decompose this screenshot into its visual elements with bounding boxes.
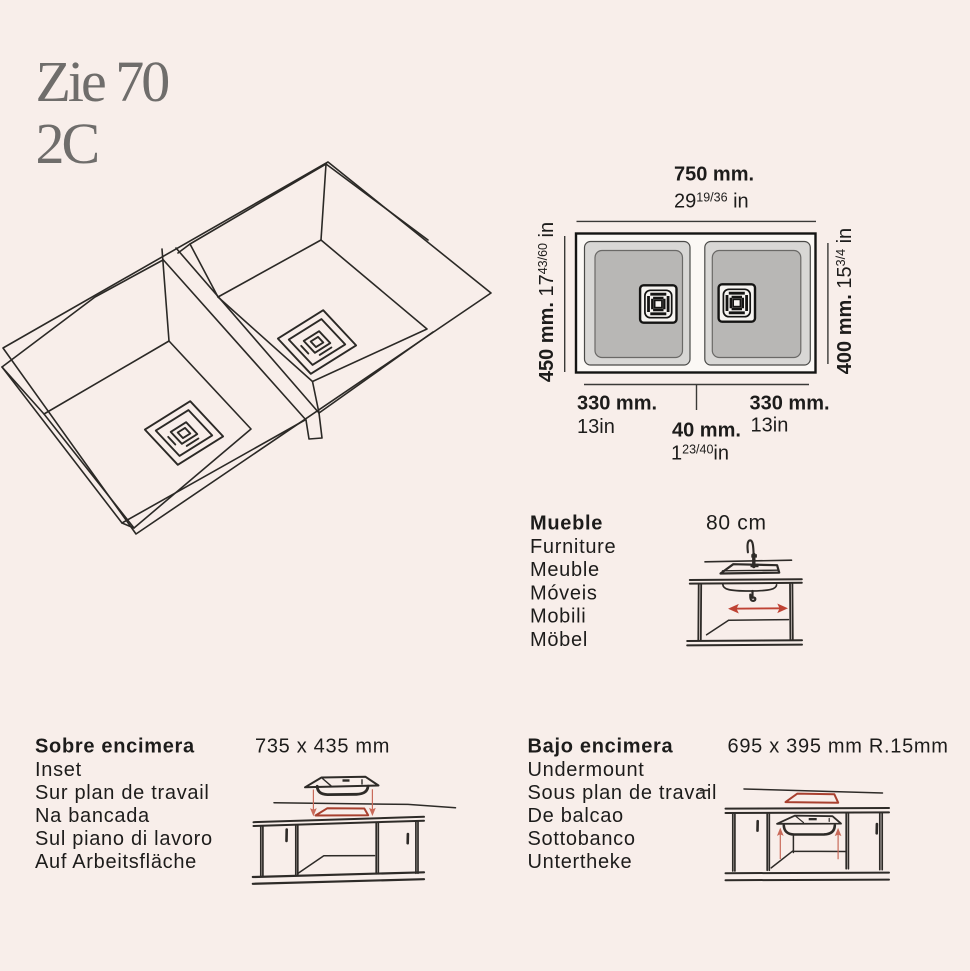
svg-text:330 mm.: 330 mm. [750, 393, 830, 415]
svg-text:Sous plan de travail: Sous plan de travail [528, 782, 718, 804]
svg-text:Furniture: Furniture [530, 536, 616, 558]
svg-text:40 mm.: 40 mm. [672, 420, 741, 442]
svg-text:Móveis: Móveis [530, 583, 598, 605]
svg-text:Auf Arbeitsfläche: Auf Arbeitsfläche [35, 851, 197, 873]
svg-text:Untertheke: Untertheke [528, 851, 633, 873]
svg-text:Na bancada: Na bancada [35, 805, 150, 827]
svg-text:Mueble: Mueble [530, 513, 603, 535]
svg-text:Inset: Inset [35, 759, 82, 781]
svg-text:13in: 13in [577, 416, 615, 438]
svg-text:Sottobanco: Sottobanco [528, 828, 636, 850]
svg-text:2C: 2C [36, 111, 98, 176]
svg-text:80 cm: 80 cm [706, 512, 767, 535]
svg-text:Zie 70: Zie 70 [36, 49, 169, 114]
svg-text:750 mm.: 750 mm. [674, 164, 754, 186]
svg-text:Sul piano di lavoro: Sul piano di lavoro [35, 828, 213, 850]
svg-text:735 x 435 mm: 735 x 435 mm [255, 736, 390, 758]
svg-text:Möbel: Möbel [530, 629, 588, 651]
svg-text:Sur plan de travail: Sur plan de travail [35, 782, 210, 804]
svg-text:Undermount: Undermount [528, 759, 645, 781]
svg-text:De balcao: De balcao [528, 805, 624, 827]
svg-text:Sobre encimera: Sobre encimera [35, 736, 195, 758]
svg-text:Meuble: Meuble [530, 559, 600, 581]
svg-text:13in: 13in [751, 415, 789, 437]
svg-text:695 x 395 mm R.15mm: 695 x 395 mm R.15mm [728, 736, 949, 758]
svg-text:Mobili: Mobili [530, 606, 586, 628]
svg-text:400 mm. 153/4 in: 400 mm. 153/4 in [834, 228, 856, 374]
svg-text:Bajo encimera: Bajo encimera [528, 736, 674, 758]
svg-text:330 mm.: 330 mm. [577, 393, 657, 415]
